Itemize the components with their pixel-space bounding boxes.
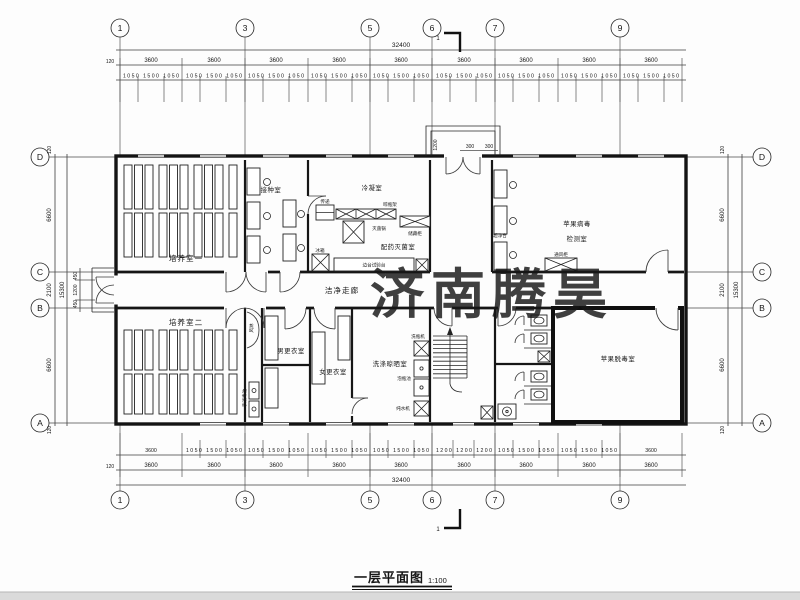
dim-bay: 3600 bbox=[644, 58, 658, 64]
equipment-label: 通风柜 bbox=[554, 251, 568, 258]
room-label: 女更衣室 bbox=[319, 367, 347, 376]
room-culture1: 培养室一 bbox=[124, 165, 237, 263]
grid-bubble: 9 bbox=[618, 23, 623, 33]
grid-bubble: 5 bbox=[368, 495, 373, 505]
room-label: 检测室 bbox=[567, 234, 588, 243]
equipment-label: 风淋 bbox=[248, 323, 255, 333]
dim-offset-top: 120 bbox=[106, 59, 115, 65]
equipment-label: 储藏柜 bbox=[408, 230, 422, 237]
grid-bubbles-right: D C B A bbox=[753, 148, 771, 432]
dim-detail: 1050 1500 1050 bbox=[498, 448, 554, 454]
grid-bubble: A bbox=[37, 418, 43, 428]
dim-bay: 3600 bbox=[269, 463, 283, 469]
room-label: 洗涤晾晒室 bbox=[373, 359, 408, 368]
pass-box: 传递 bbox=[316, 198, 334, 220]
dim-bay: 3600 bbox=[144, 463, 158, 469]
dim-left: 6600 bbox=[47, 358, 53, 372]
equipment-label: 超净台 bbox=[493, 232, 507, 239]
equipment-label: 泡瓶池 bbox=[397, 375, 411, 382]
bottom-dimensions: 3600 1050 1500 1050 1050 1500 1050 1050 … bbox=[106, 424, 686, 533]
dim-left: 2100 bbox=[47, 283, 53, 297]
equipment-label: 冰箱 bbox=[315, 247, 325, 254]
bottle-rack: 晾瓶架 bbox=[336, 201, 397, 219]
dim-bay: 3600 bbox=[394, 58, 408, 64]
grid-bubble: 6 bbox=[430, 23, 435, 33]
room-label: 苹果脱毒室 bbox=[601, 354, 636, 363]
grid-bubble: A bbox=[759, 418, 765, 428]
dim-detail: 1050 1500 1050 bbox=[248, 74, 304, 80]
grid-bubble: 1 bbox=[118, 495, 123, 505]
room-label: 接种室 bbox=[261, 185, 282, 194]
footer-strip bbox=[0, 592, 800, 600]
watermark-text: 济南腾昊 bbox=[370, 265, 614, 325]
grid-bubbles-bottom: 1 3 5 6 7 9 bbox=[111, 491, 629, 509]
dim-bay: 3600 bbox=[207, 463, 221, 469]
corridor-exterior-door bbox=[92, 268, 114, 312]
entrance-dimensions: 1200 300 300 bbox=[433, 139, 498, 150]
right-dimensions: 120 6600 2100 6600 120 15300 D C B A bbox=[686, 146, 771, 435]
dim-left: 6600 bbox=[47, 208, 53, 222]
grid-bubble: 5 bbox=[368, 23, 373, 33]
room-changing: 男更衣室 女更衣室 bbox=[265, 316, 350, 408]
dim-bay: 3600 bbox=[519, 58, 533, 64]
top-dimensions: 32400 120 3600 3600 3600 3600 3600 3600 … bbox=[106, 19, 686, 156]
section-marker-bottom: 1 bbox=[436, 509, 460, 533]
grid-bubble: B bbox=[759, 303, 765, 313]
dim-detail: 3600 bbox=[145, 448, 157, 454]
grid-bubble: B bbox=[37, 303, 43, 313]
dim-bay: 3600 bbox=[644, 463, 658, 469]
dim-detail: 1050 1500 1050 bbox=[373, 448, 429, 454]
left-dimensions: 120 6600 2100 6600 120 15300 450 1200 45… bbox=[31, 146, 116, 435]
grid-bubble: 9 bbox=[618, 495, 623, 505]
bottle-washer: 洗瓶机 bbox=[411, 333, 429, 356]
dim-bay: 3600 bbox=[457, 58, 471, 64]
room-label: 培养室二 bbox=[169, 317, 203, 327]
dim-total-top: 32400 bbox=[392, 42, 411, 49]
dim-detail: 1050 1500 1050 bbox=[623, 74, 679, 80]
dim-right: 6600 bbox=[720, 358, 726, 372]
grid-bubble: C bbox=[37, 267, 43, 277]
windows-top bbox=[138, 153, 664, 160]
grid-bubble: 6 bbox=[430, 495, 435, 505]
room-label: 培养室一 bbox=[169, 253, 203, 263]
equipment-label: 纯水机 bbox=[396, 405, 410, 412]
grid-bubble: 3 bbox=[243, 23, 248, 33]
grid-bubble: 3 bbox=[243, 495, 248, 505]
room-condensation-sterilization: 冷凝室 传递 晾瓶架 灭菌锅 储藏柜 配药灭菌室 冰箱 bbox=[312, 183, 430, 271]
section-number: 1 bbox=[436, 527, 440, 533]
dim-left-sub: 1200 bbox=[73, 284, 79, 295]
dim-entrance: 300 bbox=[485, 144, 494, 150]
dim-right: 2100 bbox=[720, 283, 726, 297]
dim-detail: 3600 bbox=[645, 448, 657, 454]
grid-bubble: 1 bbox=[118, 23, 123, 33]
dim-right: 6600 bbox=[720, 208, 726, 222]
dim-bay: 3600 bbox=[269, 58, 283, 64]
dim-bay: 3600 bbox=[519, 463, 533, 469]
room-corridor: 洁净走廊 bbox=[325, 285, 359, 295]
room-detection: 超净台 苹果病毒 检测室 通风柜 bbox=[493, 170, 591, 271]
dim-entrance: 1200 bbox=[433, 139, 439, 150]
fridge: 冰箱 bbox=[312, 247, 329, 271]
title-block: 一层平面图 1:100 bbox=[352, 570, 452, 590]
dim-left-sub: 450 bbox=[73, 300, 79, 309]
equipment-label: 晾瓶架 bbox=[383, 201, 397, 208]
dim-right-total: 15300 bbox=[734, 281, 740, 298]
grid-bubbles-top: 1 3 5 6 7 9 bbox=[111, 19, 629, 37]
equipment-label: 洗瓶机 bbox=[411, 333, 425, 340]
dim-bay: 3600 bbox=[332, 58, 346, 64]
dim-left-total: 15300 bbox=[60, 281, 66, 298]
air-shower-strip: 风淋 手消毒池 bbox=[241, 312, 259, 417]
dim-bay: 3600 bbox=[207, 58, 221, 64]
storage-cabinet: 储藏柜 bbox=[400, 216, 430, 237]
dim-detail: 1050 1500 1050 bbox=[436, 74, 492, 80]
dim-entrance: 300 bbox=[466, 144, 475, 150]
room-detox: 苹果脱毒室 bbox=[601, 354, 636, 363]
grid-bubble: D bbox=[37, 152, 43, 162]
sterilizer: 灭菌锅 bbox=[343, 221, 386, 243]
dim-bay: 3600 bbox=[582, 463, 596, 469]
dim-bay: 3600 bbox=[332, 463, 346, 469]
floor-plan-drawing: 32400 120 3600 3600 3600 3600 3600 3600 … bbox=[0, 0, 800, 600]
grid-bubble: 7 bbox=[493, 23, 498, 33]
water-purifier: 纯水机 bbox=[396, 401, 429, 416]
room-label: 冷凝室 bbox=[362, 183, 383, 192]
room-label: 洁净走廊 bbox=[325, 285, 359, 295]
drawing-title: 一层平面图 bbox=[354, 570, 424, 585]
dim-bay: 3600 bbox=[457, 463, 471, 469]
drawing-scale: 1:100 bbox=[428, 576, 447, 585]
dim-detail: 1050 1500 1050 bbox=[561, 448, 617, 454]
dim-bay: 3600 bbox=[394, 463, 408, 469]
dim-bay: 3600 bbox=[582, 58, 596, 64]
room-inoculation: 接种室 bbox=[247, 168, 305, 263]
room-washing: 洗涤晾晒室 洗瓶机 泡瓶池 纯水机 bbox=[373, 333, 429, 416]
grid-bubble: D bbox=[759, 152, 765, 162]
section-number: 1 bbox=[436, 36, 440, 42]
dim-total-bottom: 32400 bbox=[392, 477, 411, 484]
equipment-label: 灭菌锅 bbox=[372, 225, 386, 232]
section-marker-top: 1 bbox=[436, 33, 460, 52]
grid-bubble: C bbox=[759, 267, 765, 277]
floor-plan-page: 32400 120 3600 3600 3600 3600 3600 3600 … bbox=[0, 0, 800, 600]
room-label: 苹果病毒 bbox=[563, 219, 591, 228]
toilets bbox=[498, 315, 551, 419]
dim-offset-bottom: 120 bbox=[106, 464, 115, 470]
equipment-label: 传递 bbox=[320, 198, 330, 205]
dim-detail: 1050 1500 1050 bbox=[123, 74, 179, 80]
room-culture2: 培养室二 bbox=[124, 317, 237, 414]
dim-right: 120 bbox=[720, 146, 726, 155]
room-label: 男更衣室 bbox=[277, 346, 305, 355]
stair-hall bbox=[433, 327, 493, 419]
dim-left-sub: 450 bbox=[73, 272, 79, 281]
equipment-label: 手消毒池 bbox=[241, 388, 248, 407]
culture-racks bbox=[124, 330, 237, 414]
room-label: 配药灭菌室 bbox=[381, 242, 416, 251]
culture-racks bbox=[124, 165, 237, 257]
dim-right: 120 bbox=[720, 426, 726, 435]
dim-detail: 1050 1500 1050 bbox=[311, 74, 367, 80]
dim-detail: 1050 1500 1050 bbox=[373, 74, 429, 80]
dim-detail: 1050 1500 1050 bbox=[311, 448, 367, 454]
dim-detail: 1050 1500 1050 bbox=[186, 448, 242, 454]
dim-detail: 1050 1500 1050 bbox=[186, 74, 242, 80]
dim-detail: 1050 1500 1050 bbox=[248, 448, 304, 454]
staircase bbox=[433, 327, 467, 392]
grid-bubble: 7 bbox=[493, 495, 498, 505]
dim-detail: 1050 1500 1050 bbox=[498, 74, 554, 80]
dim-detail: 1200 1200 1200 bbox=[436, 448, 492, 454]
dim-detail: 1050 1500 1050 bbox=[561, 74, 617, 80]
dim-bay: 3600 bbox=[144, 58, 158, 64]
